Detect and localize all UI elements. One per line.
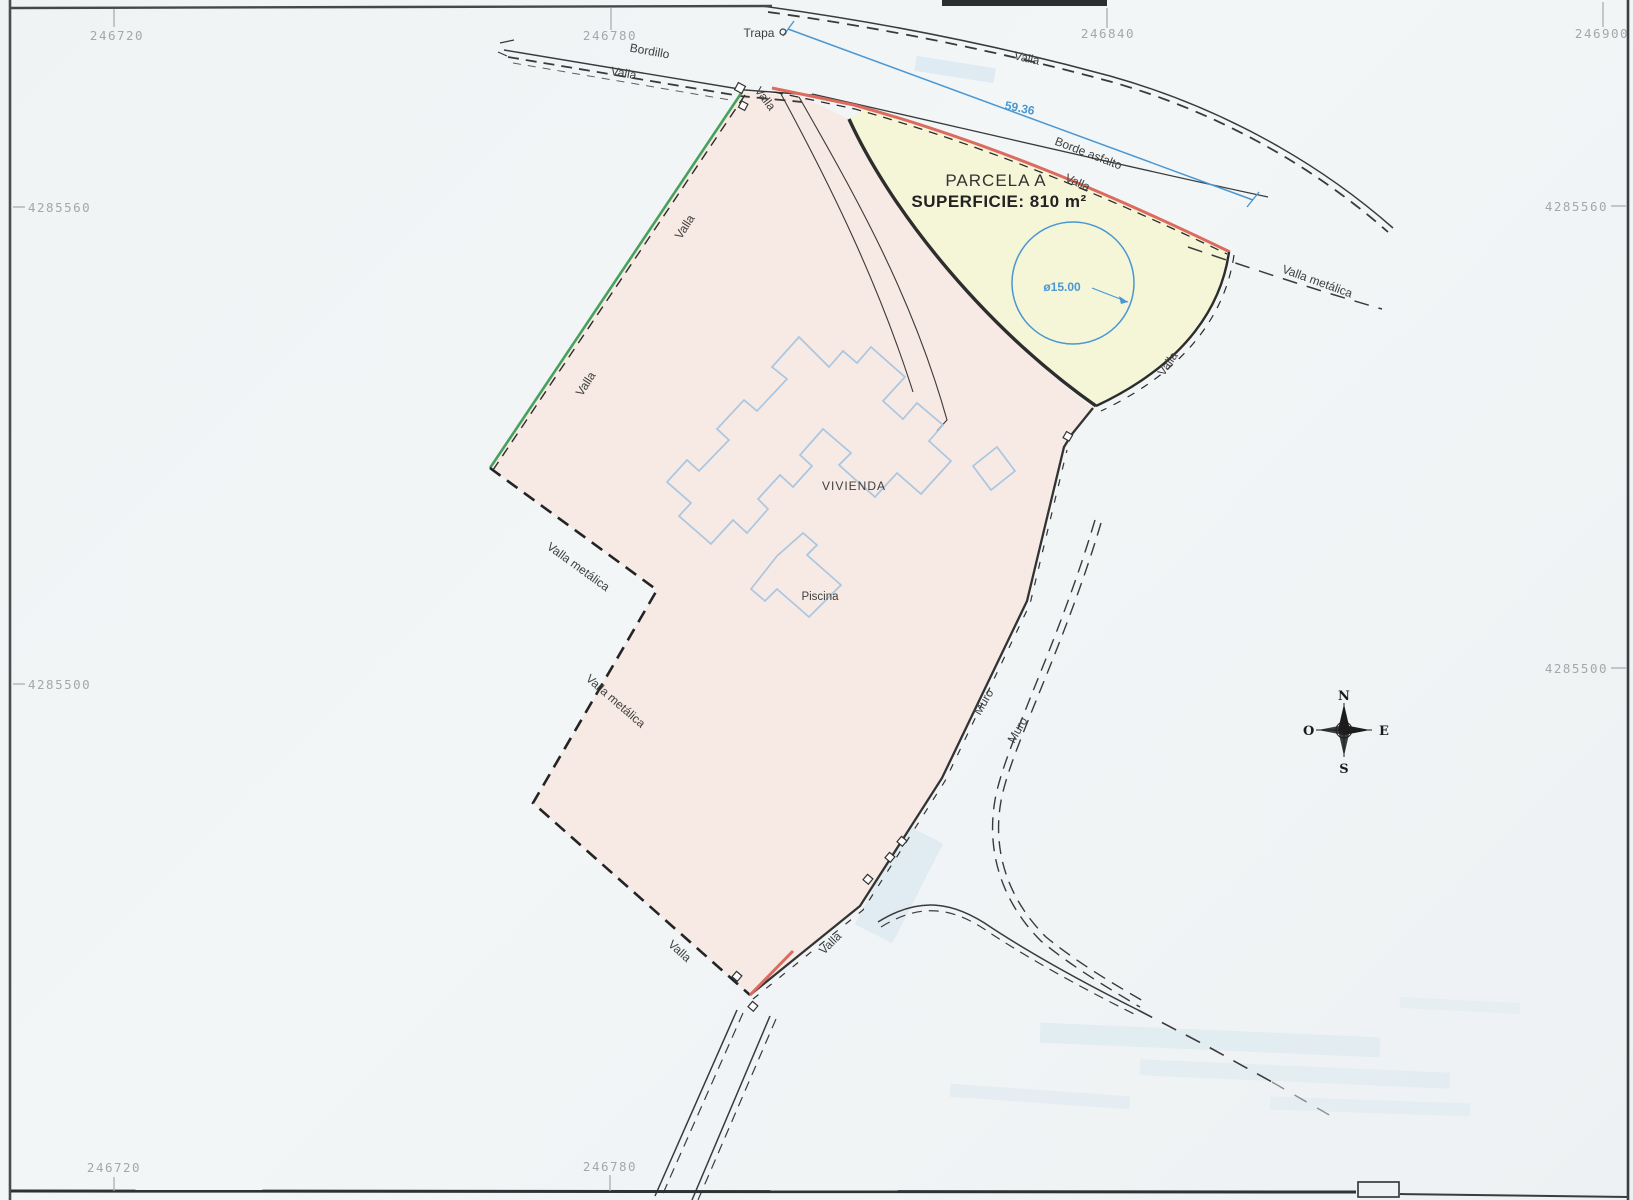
coord-right-2: 4285500 [1545,661,1608,676]
circle-dim-label: ø15.00 [1043,280,1081,294]
frontage-dim-label: 59.36 [1004,98,1036,118]
coord-top-3: 246840 [1081,26,1135,41]
vivienda-label: VIVIENDA [822,479,886,493]
coord-right-1: 4285560 [1545,199,1608,214]
coord-bottom-2: 246780 [583,1159,637,1174]
parcela-a-surface: SUPERFICIE: 810 m² [911,192,1086,211]
parcela-a-title: PARCELA A [945,171,1046,190]
coord-bottom-1: 246720 [87,1160,141,1175]
compass-south-label: S [1339,762,1348,777]
coord-top-4: 246900 [1575,26,1629,41]
coord-left-2: 4285500 [28,677,91,692]
trapa-label: Trapa [744,26,775,40]
compass-north-label: N [1338,689,1350,704]
compass-east-label: E [1379,724,1389,739]
coord-top-2: 246780 [583,28,637,43]
coord-top-1: 246720 [90,28,144,43]
muro-label-wall: Muro [1005,714,1031,745]
compass-rose: N S E O [1303,689,1389,777]
valla-label-road-left: Valla [610,64,638,82]
bordillo-label: Bordillo [629,41,671,62]
piscina-label: Piscina [801,591,839,603]
valla-label-road-top: Valla [1013,48,1042,68]
parcels [490,92,1229,995]
compass-west-label: O [1303,724,1314,739]
coord-left-1: 4285560 [28,200,91,215]
site-plan-page: PARCELA A SUPERFICIE: 810 m² VIVIENDA Pi… [0,0,1633,1200]
site-plan-drawing: PARCELA A SUPERFICIE: 810 m² VIVIENDA Pi… [0,0,1633,1200]
